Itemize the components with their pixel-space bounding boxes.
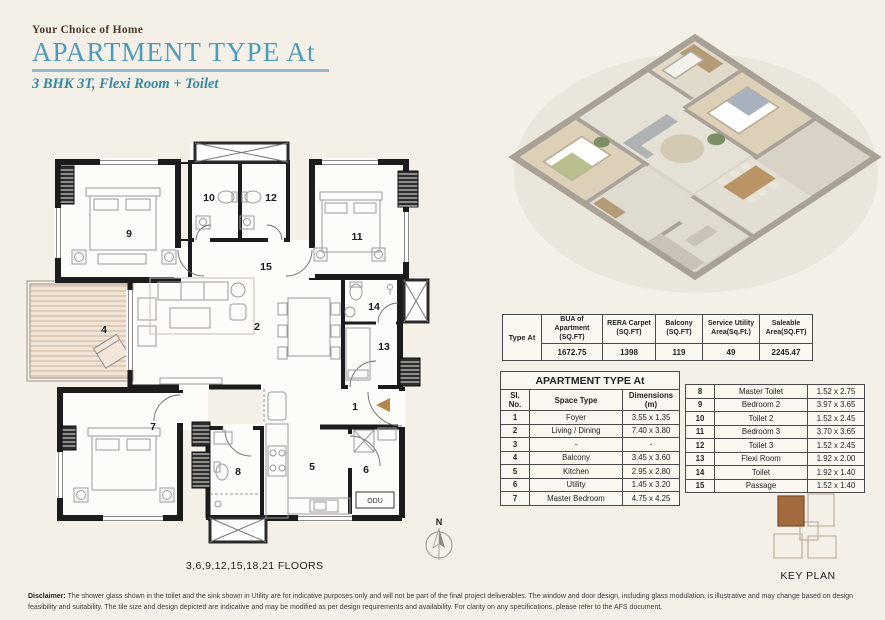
key-plan-highlight (778, 496, 804, 526)
room-number-7: 7 (150, 421, 156, 433)
key-plan-label: KEY PLAN (752, 570, 864, 582)
table-row: 10Toilet 21.52 x 2.45 (686, 412, 865, 426)
col-bua: BUA of Apartment (SQ.FT) (542, 315, 603, 344)
col-balcony: Balcony (SQ.FT) (656, 315, 703, 344)
room-number-4: 4 (101, 324, 107, 336)
header: Your Choice of Home APARTMENT TYPE At 3 … (32, 24, 329, 93)
room-number-1: 1 (352, 401, 358, 413)
table-row: 14Toilet1.92 x 1.40 (686, 466, 865, 480)
type-cell: Type At (503, 315, 542, 361)
room-number-14: 14 (368, 301, 380, 313)
col-slno: Sl. No. (501, 390, 530, 411)
table-row: 7Master Bedroom4.75 x 4.25 (501, 492, 680, 506)
table-row: 13Flexi Room1.92 x 2.00 (686, 452, 865, 466)
col-service: Service Utility Area(Sq.Ft.) (703, 315, 760, 344)
compass-north-label: N (436, 517, 443, 527)
table-row: 3-- (501, 438, 680, 452)
page-title: APARTMENT TYPE At (32, 38, 329, 72)
table-row: 12Toilet 31.52 x 2.45 (686, 439, 865, 453)
table-row: 4Balcony3.45 x 3.60 (501, 451, 680, 465)
dimensions-table-title: APARTMENT TYPE At (501, 372, 680, 390)
table-row: 6Utility1.45 x 3.20 (501, 478, 680, 492)
col-space-type: Space Type (530, 390, 623, 411)
val-saleable: 2245.47 (760, 344, 813, 361)
odu-box: ODU (356, 492, 394, 508)
room-number-2: 2 (254, 321, 260, 333)
table-header-row: Type At BUA of Apartment (SQ.FT) RERA Ca… (503, 315, 813, 344)
dimensions-table-right: 8Master Toilet1.52 x 2.75 9Bedroom 23.97… (685, 384, 865, 493)
disclaimer-text: The shower glass shown in the toilet and… (28, 593, 853, 611)
table-row: 8Master Toilet1.52 x 2.75 (686, 385, 865, 399)
floor-plan: ODU 1 2 4 5 6 7 8 9 10 11 12 13 14 15 (10, 140, 450, 550)
disclaimer: Disclaimer: The shower glass shown in th… (28, 591, 864, 613)
room-number-10: 10 (203, 192, 215, 204)
dimensions-table-left: APARTMENT TYPE At Sl. No. Space Type Dim… (500, 371, 680, 506)
room-number-9: 9 (126, 228, 132, 240)
col-saleable: Saleable Area(SQ.FT) (760, 315, 813, 344)
val-bua: 1672.75 (542, 344, 603, 361)
table-row: 11Bedroom 33.70 x 3.65 (686, 425, 865, 439)
room-number-11: 11 (351, 231, 362, 243)
brochure-page: Your Choice of Home APARTMENT TYPE At 3 … (0, 0, 885, 620)
val-service: 49 (703, 344, 760, 361)
room-number-13: 13 (378, 341, 390, 353)
dimensions-tables: APARTMENT TYPE At Sl. No. Space Type Dim… (500, 371, 865, 506)
room-number-15: 15 (260, 261, 272, 273)
val-balcony: 119 (656, 344, 703, 361)
val-rera: 1398 (603, 344, 656, 361)
table-row: 5Kitchen2.95 x 2.80 (501, 465, 680, 479)
table-value-row: 1672.75 1398 119 49 2245.47 (503, 344, 813, 361)
balcony-deck (27, 281, 133, 381)
disclaimer-label: Disclaimer: (28, 593, 66, 600)
apartment-3d-render (500, 5, 885, 310)
compass: N (420, 514, 460, 566)
tagline: Your Choice of Home (32, 24, 329, 36)
col-dimensions: Dimensions (m) (623, 390, 680, 411)
room-number-8: 8 (235, 466, 241, 478)
table-row: 1Foyer3.55 x 1.35 (501, 411, 680, 425)
room-number-12: 12 (265, 192, 277, 204)
room-number-5: 5 (309, 461, 315, 473)
area-summary-table: Type At BUA of Apartment (SQ.FT) RERA Ca… (502, 314, 813, 361)
table-row: 9Bedroom 23.97 x 3.65 (686, 398, 865, 412)
key-plan-diagram (752, 490, 864, 562)
key-plan: KEY PLAN (752, 490, 864, 582)
floors-label: 3,6,9,12,15,18,21 FLOORS (186, 560, 323, 572)
page-subtitle: 3 BHK 3T, Flexi Room + Toilet (32, 76, 329, 93)
odu-label: ODU (367, 498, 383, 505)
col-rera: RERA Carpet (SQ.FT) (603, 315, 656, 344)
table-row: 2Living / Dining7.40 x 3.80 (501, 424, 680, 438)
room-number-6: 6 (363, 464, 369, 476)
